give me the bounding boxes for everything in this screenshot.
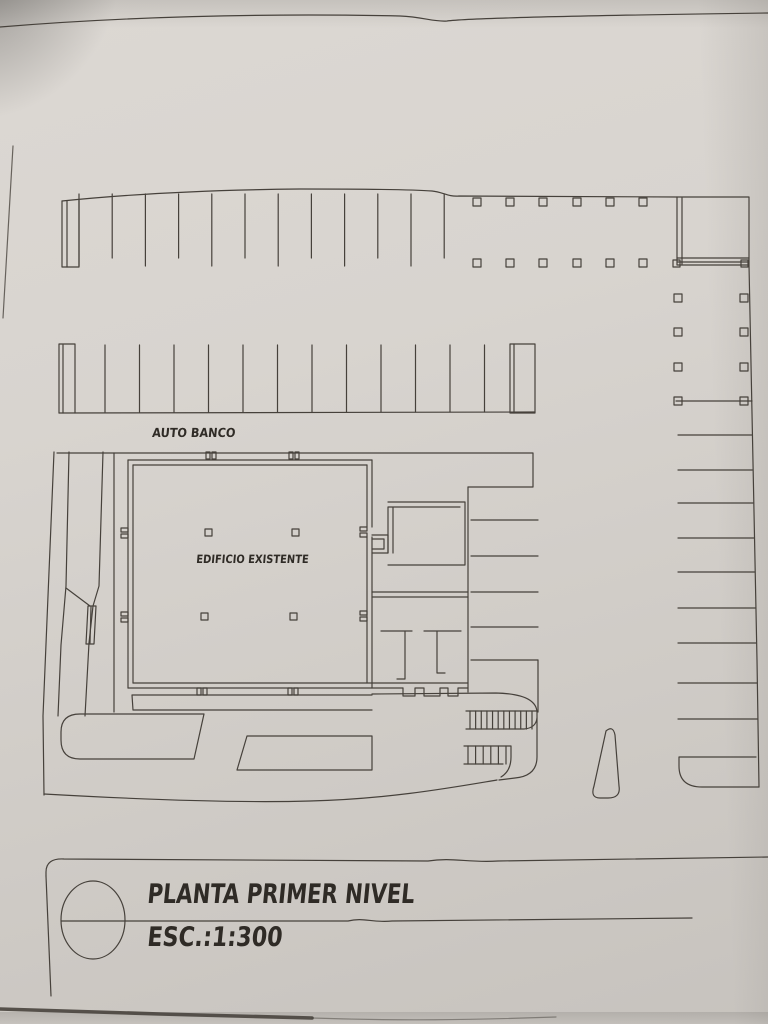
wall-tick [360,617,367,621]
band-middle-end-stall-left [59,344,75,413]
median-island-inner [90,607,91,643]
building-column [205,529,212,536]
parking-band-top [62,189,677,267]
stair-hatch-2 [468,746,506,764]
band-middle-stall-dividers [105,345,485,412]
building-wall-right [367,460,372,688]
column-marker [473,259,481,267]
column-marker [506,198,514,206]
column-marker [741,260,748,267]
median-jog-line [66,588,90,606]
building-interior-columns [201,529,299,620]
right-stall-lines [678,435,758,719]
right-end-stall-rounded [679,757,759,787]
column-marker [473,198,481,206]
building-wall-bottom [128,683,468,688]
auto-banco-label: AUTO BANCO [152,425,237,440]
sheet-frame [0,13,768,1020]
title-block-top-line [46,857,768,876]
parking-band-middle [59,344,535,413]
column-marker [606,259,614,267]
building-wall-top [128,460,372,465]
annex-lower-room-walls [381,631,461,679]
right-parking-area [674,265,759,787]
column-marker [506,259,514,267]
band-top-end-stall [62,200,79,267]
band-middle-aisle-line [59,412,535,413]
column-marker [539,259,547,267]
column-marker [674,328,682,336]
kiosk-inner-wall-bottom [677,258,749,262]
column-marker [539,198,547,206]
site-boundary-right [749,265,759,787]
annex-side-stall-lines [471,520,538,660]
curb-island-middle [237,736,372,770]
southeast-walk [372,660,538,780]
building-apron-strip [132,695,372,710]
column-marker [740,363,748,371]
building-column [292,529,299,536]
column-marker [740,294,748,302]
wall-tick [288,688,292,695]
plan-title: PLANTA PRIMER NIVEL [146,879,416,910]
paper-bottom-shadow [0,1012,768,1024]
column-marker [740,328,748,336]
column-marker [573,259,581,267]
scanned-plan-sheet: AUTO BANCO EDIFICIO EXISTENTE PLANTA PRI… [0,0,768,1024]
castellated-edge [403,688,468,696]
driveway-curve [44,780,497,802]
wall-tick [294,688,298,695]
wall-tick [197,688,201,695]
triangle-island [593,729,619,798]
site-plan-svg [0,0,768,1024]
sheet-border-left-top [3,146,13,318]
stair-strip-2 [464,746,511,777]
sheet-border-top [0,13,768,27]
right-column-markers [674,294,748,405]
annex-upper-room [388,502,465,565]
building-label: EDIFICIO EXISTENTE [196,552,310,566]
wall-tick [360,611,367,615]
plan-scale: ESC.:1:300 [146,922,284,953]
wall-tick [360,533,367,537]
curb-island-left [61,714,204,759]
building-annexes [372,487,538,696]
band-top-stall-dividers [79,194,444,266]
building-column [290,613,297,620]
building-outline [121,452,468,695]
column-marker [639,198,647,206]
column-marker [573,198,581,206]
site-boundary-left [43,452,54,795]
wall-tick [203,688,207,695]
stair-hatch-1 [470,711,532,729]
vestibule [372,535,388,553]
median-left-line [58,452,69,716]
kiosk-outline [677,197,749,265]
median-right-line [85,452,103,716]
column-marker [639,259,647,267]
north-symbol-circle [61,881,125,959]
sheet-border-left-bottom [46,876,51,996]
wall-tick [121,612,128,616]
column-marker [606,198,614,206]
wall-tick [121,528,128,532]
wall-tick [121,534,128,538]
band-top-column-markers [473,198,647,267]
band-top-line [62,189,677,201]
annex-lower-room-top [372,592,468,597]
column-marker [674,294,682,302]
kiosk-structure [673,197,749,267]
title-block-divider-line [61,918,692,921]
wall-tick [360,527,367,531]
building-column [201,613,208,620]
left-site-edge [43,452,114,795]
walk-outline [372,693,537,780]
wall-tick [121,618,128,622]
column-marker [674,363,682,371]
building-wall-left [128,460,133,688]
